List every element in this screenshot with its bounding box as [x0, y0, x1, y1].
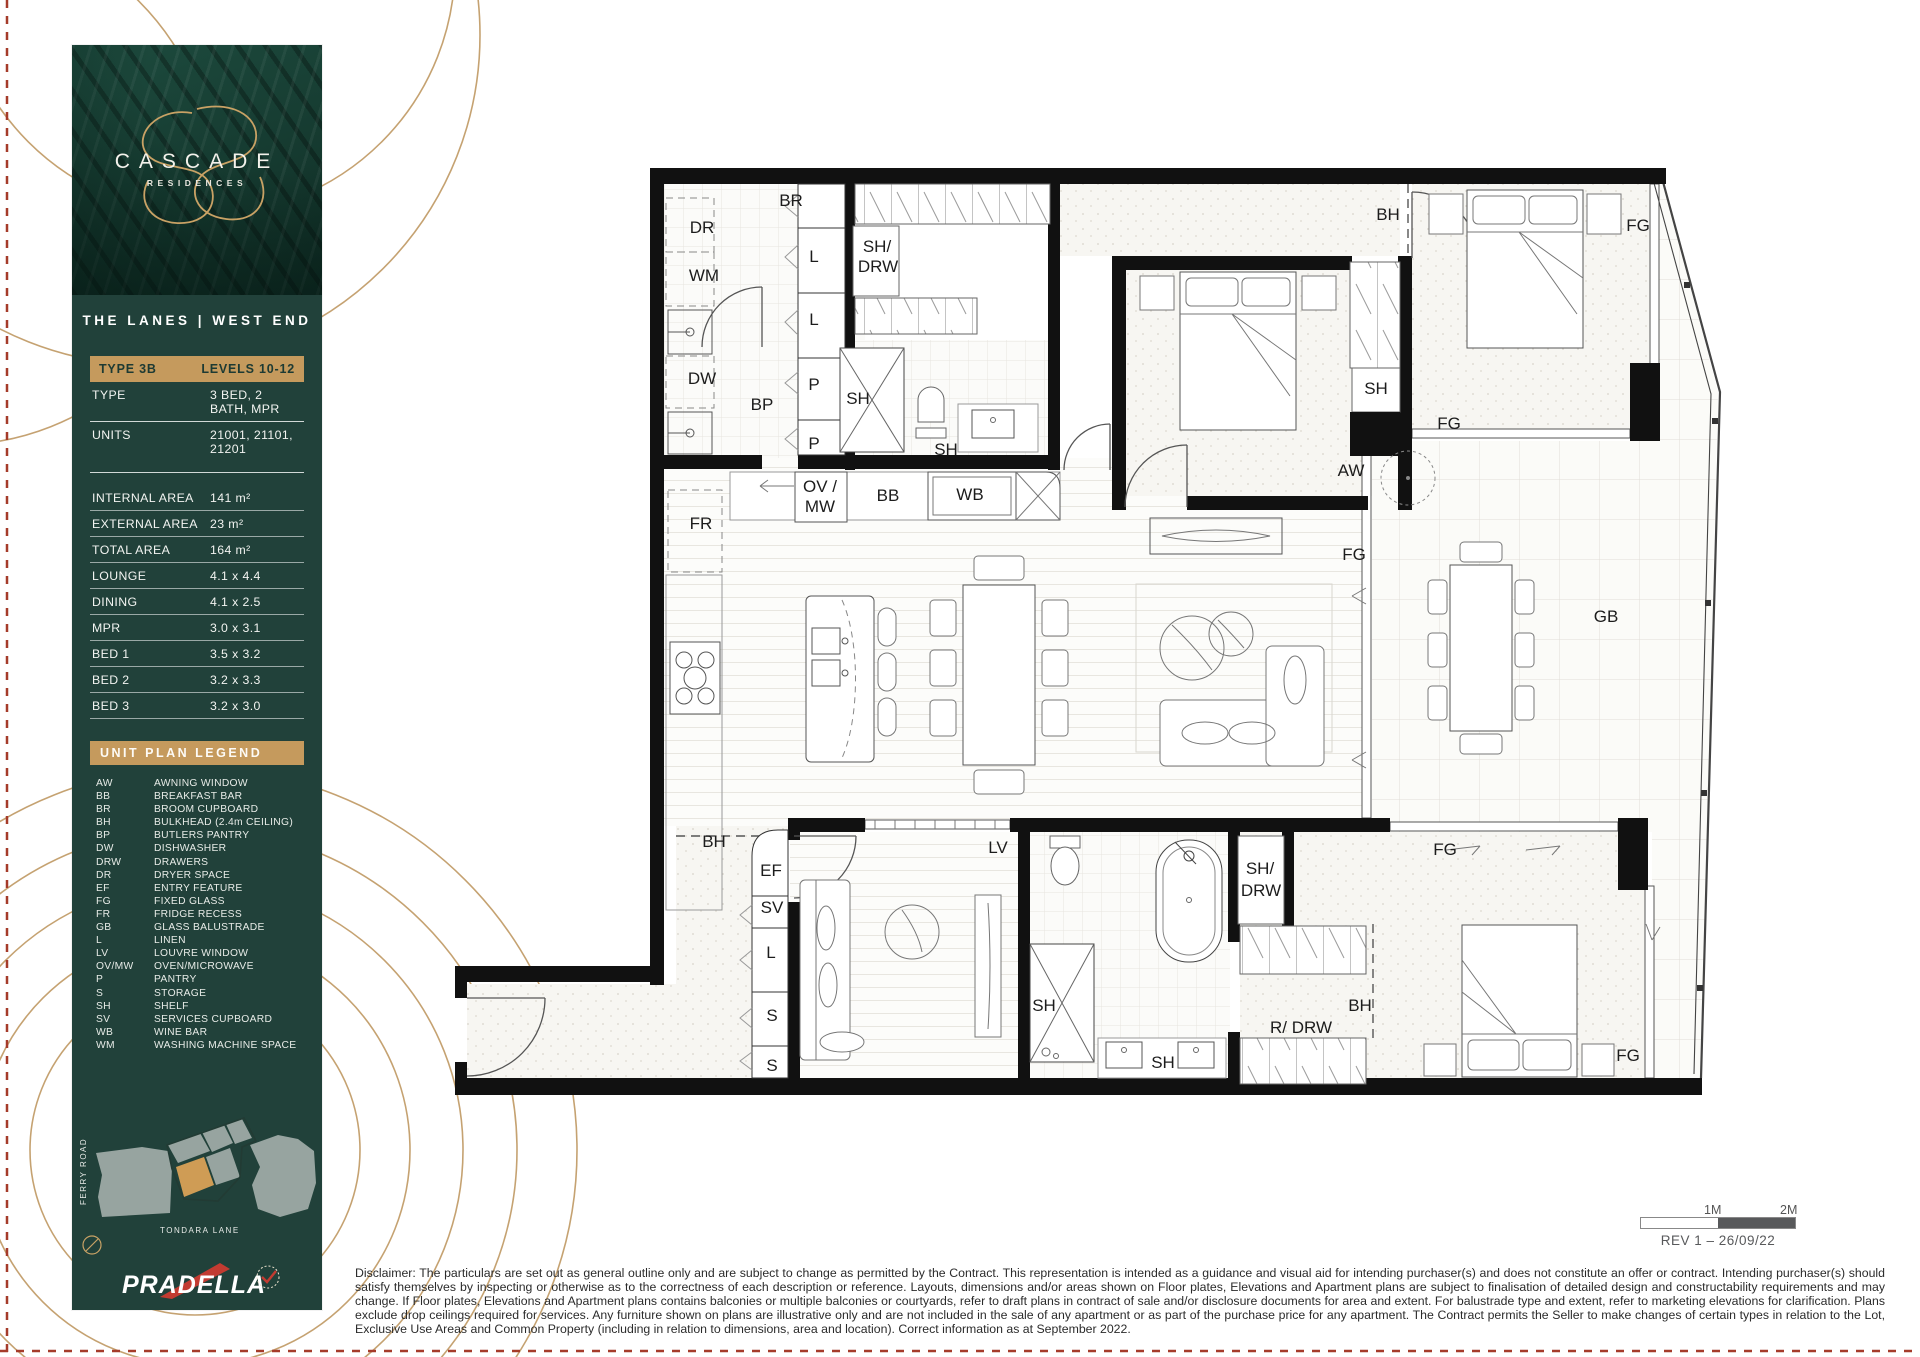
legend-abbr: SH — [90, 1000, 154, 1013]
legend-desc: FRIDGE RECESS — [154, 908, 242, 921]
legend-abbr: BR — [90, 803, 154, 816]
legend-abbr: FG — [90, 895, 154, 908]
plan-label-sh: SH — [846, 389, 870, 408]
legend-item-ef: EFENTRY FEATURE — [90, 882, 304, 895]
plan-label-l: L — [809, 310, 818, 329]
legend-abbr: DRW — [90, 856, 154, 869]
plan-label-l: L — [809, 247, 818, 266]
plan-label-fg: FG — [1342, 545, 1366, 564]
spec-value: 3.5 x 3.2 — [210, 647, 302, 661]
plan-label-br: BR — [779, 191, 803, 210]
spec-label: BED 1 — [92, 647, 210, 661]
legend-title: UNIT PLAN LEGEND — [90, 741, 304, 765]
plan-label-l: L — [766, 943, 775, 962]
legend-desc: FIXED GLASS — [154, 895, 225, 908]
brochure-page: BRDRWMLLSH/DRWDWBPPPSHSHOV /MWBBWBFRBHSH… — [0, 0, 1920, 1357]
plan-label-sv: SV — [761, 898, 784, 917]
spec-value: 23 m² — [210, 517, 302, 531]
plan-label-fg: FG — [1433, 840, 1457, 859]
plan-label-sh: SH/ — [863, 237, 892, 256]
plan-label-drw: DRW — [1241, 881, 1281, 900]
legend-item-aw: AWAWNING WINDOW — [90, 777, 304, 790]
scale-2m: 2M — [1780, 1203, 1797, 1217]
scale-bar-graphic — [1640, 1217, 1796, 1229]
legend-abbr: GB — [90, 921, 154, 934]
plan-label-dr: DR — [690, 218, 715, 237]
legend-item-wb: WBWINE BAR — [90, 1026, 304, 1039]
plan-label-p: P — [808, 375, 819, 394]
spec-label: TOTAL AREA — [92, 543, 210, 557]
plan-label-fg: FG — [1626, 216, 1650, 235]
scale-labels: 1M 2M — [1640, 1203, 1796, 1217]
legend-abbr: WB — [90, 1026, 154, 1039]
spec-rows: TYPE3 BED, 2 BATH, MPRUNITS21001, 21101,… — [90, 382, 304, 719]
site-building-cluster — [167, 1118, 256, 1201]
disclaimer-text: Disclaimer: The particulars are set out … — [355, 1266, 1885, 1336]
spec-row-external-area: EXTERNAL AREA23 m² — [90, 511, 304, 537]
spec-row-units: UNITS21001, 21101, 21201 — [90, 422, 304, 473]
plan-label-sh: SH — [934, 440, 958, 459]
legend-desc: WINE BAR — [154, 1026, 207, 1039]
legend-desc: BUTLERS PANTRY — [154, 829, 249, 842]
spec-label: LOUNGE — [92, 569, 210, 583]
spec-row-bed-3: BED 33.2 x 3.0 — [90, 693, 304, 719]
legend-item-lv: LVLOUVRE WINDOW — [90, 947, 304, 960]
spec-row-bed-1: BED 13.5 x 3.2 — [90, 641, 304, 667]
legend-item-bh: BHBULKHEAD (2.4m CEILING) — [90, 816, 304, 829]
legend-desc: STORAGE — [154, 987, 206, 1000]
legend-abbr: SV — [90, 1013, 154, 1026]
type-code: TYPE 3B — [99, 362, 157, 376]
plan-label-ef: EF — [760, 861, 782, 880]
plan-label-rdrw: R/ DRW — [1270, 1018, 1332, 1037]
legend-abbr: P — [90, 973, 154, 986]
developer-name: PRADELLA — [122, 1271, 266, 1299]
site-building-east — [250, 1135, 316, 1217]
legend-desc: OVEN/MICROWAVE — [154, 960, 254, 973]
spec-row-lounge: LOUNGE4.1 x 4.4 — [90, 563, 304, 589]
plan-label-wm: WM — [689, 266, 719, 285]
legend-item-ov-mw: OV/MWOVEN/MICROWAVE — [90, 960, 304, 973]
plan-label-dw: DW — [688, 369, 716, 388]
plan-label-bh: BH — [702, 832, 726, 851]
spec-value: 3.0 x 3.1 — [210, 621, 302, 635]
plan-label-lv: LV — [988, 838, 1008, 857]
brand-name: CASCADE — [72, 150, 322, 174]
legend-desc: AWNING WINDOW — [154, 777, 248, 790]
spec-row-total-area: TOTAL AREA164 m² — [90, 537, 304, 563]
spec-label: BED 3 — [92, 699, 210, 713]
legend-desc: LINEN — [154, 934, 186, 947]
legend-item-fr: FRFRIDGE RECESS — [90, 908, 304, 921]
spec-row-bed-2: BED 23.2 x 3.3 — [90, 667, 304, 693]
legend-desc: DRYER SPACE — [154, 869, 230, 882]
legend-item-wm: WMWASHING MACHINE SPACE — [90, 1039, 304, 1052]
legend-desc: WASHING MACHINE SPACE — [154, 1039, 296, 1052]
legend-item-s: SSTORAGE — [90, 987, 304, 1000]
legend-item-gb: GBGLASS BALUSTRADE — [90, 921, 304, 934]
legend-desc: SHELF — [154, 1000, 189, 1013]
spec-value: 3 BED, 2 BATH, MPR — [210, 388, 302, 416]
legend-desc: DRAWERS — [154, 856, 208, 869]
legend-abbr: FR — [90, 908, 154, 921]
plan-label-fg: FG — [1437, 414, 1461, 433]
legend-abbr: L — [90, 934, 154, 947]
legend-item-drw: DRWDRAWERS — [90, 856, 304, 869]
legend-abbr: BP — [90, 829, 154, 842]
plan-label-bp: BP — [751, 395, 774, 414]
legend-abbr: WM — [90, 1039, 154, 1052]
plan-label-gb: GB — [1594, 607, 1619, 626]
legend-item-bb: BBBREAKFAST BAR — [90, 790, 304, 803]
spec-table: TYPE 3B LEVELS 10-12 TYPE3 BED, 2 BATH, … — [90, 356, 304, 719]
spec-label: UNITS — [92, 428, 210, 442]
plan-label-drw: DRW — [858, 257, 898, 276]
legend-abbr: LV — [90, 947, 154, 960]
spec-label: BED 2 — [92, 673, 210, 687]
legend-item-l: LLINEN — [90, 934, 304, 947]
spec-label: DINING — [92, 595, 210, 609]
spec-value: 4.1 x 4.4 — [210, 569, 302, 583]
cascade-logo-icon — [112, 91, 282, 261]
plan-label-p: P — [808, 434, 819, 453]
legend-desc: BREAKFAST BAR — [154, 790, 242, 803]
compass-icon — [83, 1236, 101, 1254]
site-building-west — [96, 1147, 172, 1217]
unit-plan-legend: UNIT PLAN LEGEND AWAWNING WINDOWBBBREAKF… — [90, 741, 304, 1052]
brand-logo: CASCADE RESIDENCES — [72, 45, 322, 295]
legend-item-br: BRBROOM CUPBOARD — [90, 803, 304, 816]
legend-item-bp: BPBUTLERS PANTRY — [90, 829, 304, 842]
plan-label-s: S — [766, 1006, 777, 1025]
developer-logo: PRADELLA — [72, 1257, 322, 1314]
plan-label-aw: AW — [1338, 461, 1365, 480]
legend-abbr: EF — [90, 882, 154, 895]
spec-value: 21001, 21101, 21201 — [210, 428, 302, 456]
plan-label-fg: FG — [1616, 1046, 1640, 1065]
spec-value: 141 m² — [210, 491, 302, 505]
plan-label-fr: FR — [690, 514, 713, 533]
tondara-lane-label: TONDARA LANE — [160, 1226, 240, 1235]
legend-abbr: BB — [90, 790, 154, 803]
legend-abbr: DW — [90, 842, 154, 855]
legend-item-dw: DWDISHWASHER — [90, 842, 304, 855]
legend-rows: AWAWNING WINDOWBBBREAKFAST BARBRBROOM CU… — [90, 777, 304, 1052]
plan-label-sh: SH — [1364, 379, 1388, 398]
plan-label-bh: BH — [1376, 205, 1400, 224]
plan-label-sh: SH — [1151, 1053, 1175, 1072]
legend-desc: GLASS BALUSTRADE — [154, 921, 265, 934]
legend-desc: DISHWASHER — [154, 842, 226, 855]
spec-table-header: TYPE 3B LEVELS 10-12 — [90, 356, 304, 382]
legend-desc: BROOM CUPBOARD — [154, 803, 258, 816]
legend-desc: LOUVRE WINDOW — [154, 947, 248, 960]
scale-1m: 1M — [1704, 1203, 1721, 1217]
revision-label: REV 1 – 26/09/22 — [1640, 1233, 1796, 1248]
legend-abbr: S — [90, 987, 154, 1000]
levels-range: LEVELS 10-12 — [201, 362, 295, 376]
plan-label-sh: SH — [1032, 996, 1056, 1015]
plan-label-s: S — [766, 1056, 777, 1075]
legend-desc: BULKHEAD (2.4m CEILING) — [154, 816, 293, 829]
plan-label-ov: OV / — [803, 477, 837, 496]
site-location-map: FERRY ROAD TONDARA LANE — [72, 1105, 322, 1255]
spec-label: EXTERNAL AREA — [92, 517, 210, 531]
legend-item-p: PPANTRY — [90, 973, 304, 986]
brand-subtitle: RESIDENCES — [72, 178, 322, 188]
spec-value: 4.1 x 2.5 — [210, 595, 302, 609]
plan-label-bh: BH — [1348, 996, 1372, 1015]
legend-desc: SERVICES CUPBOARD — [154, 1013, 272, 1026]
legend-item-fg: FGFIXED GLASS — [90, 895, 304, 908]
plan-label-bb: BB — [877, 486, 900, 505]
plan-label-mw: MW — [805, 497, 835, 516]
spec-value: 164 m² — [210, 543, 302, 557]
spec-label: MPR — [92, 621, 210, 635]
spec-row-type: TYPE3 BED, 2 BATH, MPR — [90, 382, 304, 422]
plan-label-sh: SH/ — [1246, 859, 1275, 878]
ferry-road-label: FERRY ROAD — [79, 1138, 88, 1205]
spec-row-dining: DINING4.1 x 2.5 — [90, 589, 304, 615]
legend-abbr: BH — [90, 816, 154, 829]
spec-value: 3.2 x 3.3 — [210, 673, 302, 687]
project-tagline: THE LANES | WEST END — [72, 313, 322, 328]
spec-row-internal-area: INTERNAL AREA141 m² — [90, 485, 304, 511]
legend-item-sv: SVSERVICES CUPBOARD — [90, 1013, 304, 1026]
scale-bar: 1M 2M REV 1 – 26/09/22 — [1640, 1203, 1796, 1248]
legend-abbr: OV/MW — [90, 960, 154, 973]
legend-desc: PANTRY — [154, 973, 197, 986]
legend-abbr: DR — [90, 869, 154, 882]
spec-value: 3.2 x 3.0 — [210, 699, 302, 713]
legend-abbr: AW — [90, 777, 154, 790]
legend-item-sh: SHSHELF — [90, 1000, 304, 1013]
legend-desc: ENTRY FEATURE — [154, 882, 243, 895]
spec-row-mpr: MPR3.0 x 3.1 — [90, 615, 304, 641]
legend-item-dr: DRDRYER SPACE — [90, 869, 304, 882]
spec-label: TYPE — [92, 388, 210, 402]
sidebar-panel: CASCADE RESIDENCES THE LANES | WEST END … — [72, 45, 322, 1310]
plan-label-wb: WB — [956, 485, 983, 504]
spec-label: INTERNAL AREA — [92, 491, 210, 505]
